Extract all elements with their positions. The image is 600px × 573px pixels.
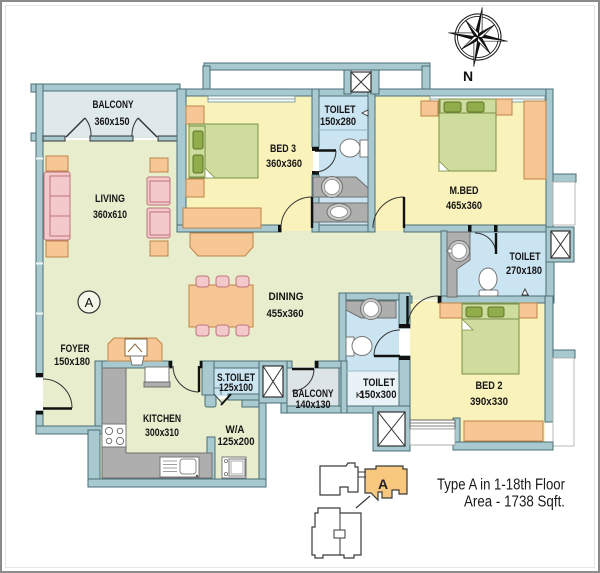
svg-text:390x330: 390x330 xyxy=(470,396,508,408)
svg-text:A: A xyxy=(378,476,388,492)
svg-text:BED 3: BED 3 xyxy=(270,143,296,155)
svg-text:N: N xyxy=(463,68,473,84)
svg-text:FOYER: FOYER xyxy=(61,343,90,355)
svg-text:LIVING: LIVING xyxy=(95,193,125,205)
svg-text:125x100: 125x100 xyxy=(219,382,253,394)
svg-text:125x200: 125x200 xyxy=(218,436,255,448)
svg-text:360x150: 360x150 xyxy=(95,116,130,128)
svg-text:KITCHEN: KITCHEN xyxy=(143,413,181,425)
svg-text:150x300: 150x300 xyxy=(360,389,397,401)
svg-text:150x180: 150x180 xyxy=(54,356,90,368)
svg-text:140x130: 140x130 xyxy=(296,399,331,411)
svg-text:Type A in 1-18th Floor: Type A in 1-18th Floor xyxy=(437,477,565,494)
svg-text:270x180: 270x180 xyxy=(506,265,542,277)
svg-text:M.BED: M.BED xyxy=(450,185,479,197)
svg-text:TOILET: TOILET xyxy=(510,251,541,263)
svg-text:465x360: 465x360 xyxy=(446,200,482,212)
svg-text:Area - 1738 Sqft.: Area - 1738 Sqft. xyxy=(464,494,565,511)
svg-text:150x280: 150x280 xyxy=(320,116,356,128)
svg-text:300x310: 300x310 xyxy=(145,427,179,439)
svg-text:BALCONY: BALCONY xyxy=(93,99,134,111)
svg-text:W/A: W/A xyxy=(226,424,245,436)
svg-text:TOILET: TOILET xyxy=(325,104,356,116)
svg-text:BED 2: BED 2 xyxy=(476,380,503,392)
svg-text:360x360: 360x360 xyxy=(266,158,302,170)
svg-text:TOILET: TOILET xyxy=(363,377,395,389)
svg-text:A: A xyxy=(85,295,94,310)
svg-text:455x360: 455x360 xyxy=(267,308,304,320)
svg-text:DINING: DINING xyxy=(269,291,304,303)
svg-text:360x610: 360x610 xyxy=(93,209,127,221)
